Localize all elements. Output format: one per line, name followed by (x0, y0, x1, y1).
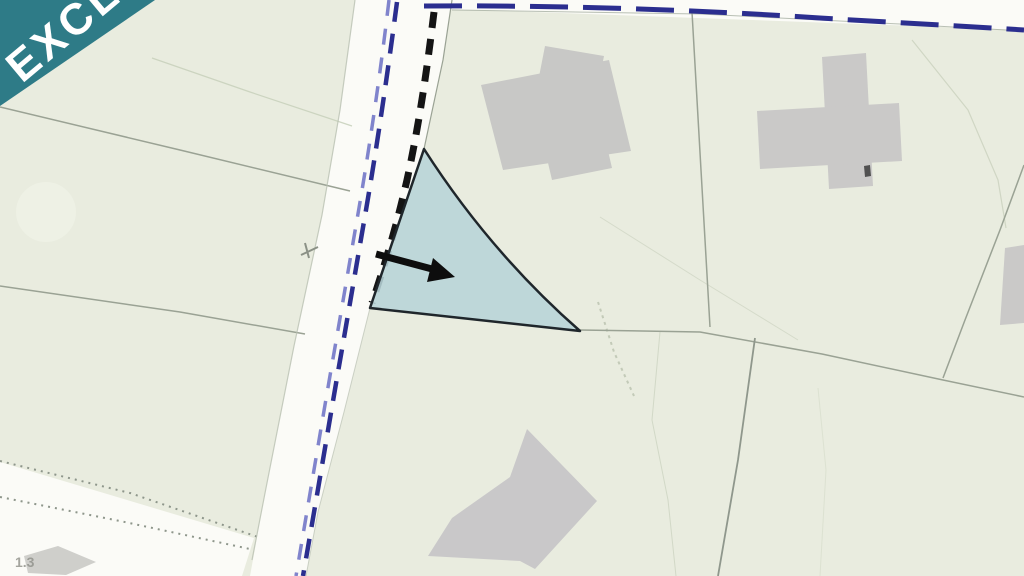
map-viewport: 1.3EXCL (0, 0, 1024, 576)
building-cross-mark (864, 165, 871, 177)
contour-blob (16, 182, 76, 242)
building-cross-horizontal (757, 103, 902, 169)
corner-label: 1.3 (15, 554, 35, 570)
map-canvas[interactable]: 1.3EXCL (0, 0, 1024, 576)
